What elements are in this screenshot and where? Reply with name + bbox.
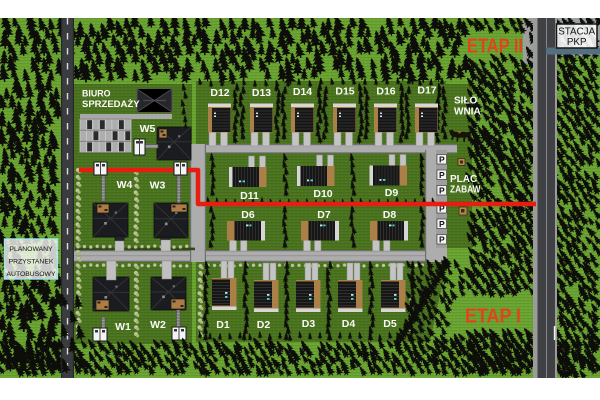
svg-text:W3: W3	[150, 180, 166, 192]
svg-text:D6: D6	[241, 209, 255, 221]
svg-text:D8: D8	[383, 209, 397, 221]
svg-text:ETAP I: ETAP I	[465, 306, 521, 328]
svg-text:D7: D7	[317, 209, 331, 221]
svg-text:STACJA: STACJA	[558, 27, 595, 38]
svg-text:P: P	[439, 219, 445, 229]
svg-text:P: P	[439, 234, 445, 244]
svg-text:D4: D4	[342, 318, 356, 330]
svg-text:PKP: PKP	[567, 37, 587, 48]
svg-text:D13: D13	[252, 87, 271, 99]
svg-text:P: P	[439, 170, 445, 180]
svg-text:WNIA: WNIA	[454, 107, 481, 118]
svg-text:D9: D9	[385, 187, 399, 199]
svg-text:D5: D5	[383, 318, 397, 330]
svg-text:ETAP II: ETAP II	[467, 36, 523, 58]
svg-text:D14: D14	[293, 86, 312, 98]
svg-text:D10: D10	[313, 188, 332, 200]
svg-text:W1: W1	[115, 321, 131, 333]
svg-text:D1: D1	[216, 319, 230, 331]
svg-text:SIŁO: SIŁO	[454, 96, 478, 107]
svg-text:SPRZEDAŻY: SPRZEDAŻY	[82, 99, 140, 110]
svg-text:D16: D16	[376, 86, 395, 98]
svg-text:W5: W5	[140, 123, 156, 135]
svg-text:D3: D3	[302, 318, 316, 330]
svg-text:D15: D15	[335, 86, 354, 98]
svg-text:D12: D12	[210, 87, 229, 99]
svg-text:PRZYSTANEK: PRZYSTANEK	[9, 259, 54, 266]
svg-text:P: P	[439, 154, 445, 164]
svg-text:P: P	[439, 185, 445, 195]
svg-text:BIURO: BIURO	[82, 89, 111, 100]
svg-text:W2: W2	[150, 319, 166, 331]
svg-text:D17: D17	[417, 85, 436, 97]
svg-text:D2: D2	[257, 319, 271, 331]
svg-text:ZABAW: ZABAW	[450, 185, 481, 196]
svg-text:W4: W4	[117, 179, 133, 191]
svg-text:AUTOBUSOWY: AUTOBUSOWY	[7, 271, 56, 278]
svg-text:PLAC: PLAC	[450, 174, 477, 185]
svg-text:D11: D11	[240, 190, 259, 202]
svg-text:PLANOWANY: PLANOWANY	[9, 246, 53, 253]
